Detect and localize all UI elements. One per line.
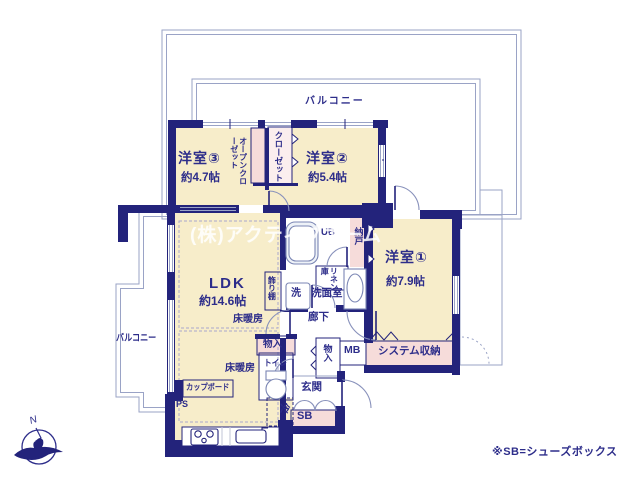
closet-label: クローゼット	[274, 131, 283, 185]
room-western1-area: 約7.9帖	[386, 276, 425, 288]
sink-icon	[236, 428, 268, 443]
watermark: (株)アクティブホーム	[190, 226, 382, 246]
vanity-icon	[344, 269, 366, 309]
room-western3-name: 洋室③	[178, 151, 221, 166]
hallway-label: 廊下	[308, 312, 329, 323]
room-western2-area: 約5.4帖	[308, 172, 347, 184]
floor-heating-label-1: 床暖房	[233, 315, 263, 326]
meter-box-label: MB	[344, 345, 360, 356]
closet-ldk-label: 物入	[263, 340, 282, 350]
closet-hall-label: 物入	[322, 344, 331, 376]
room-western1-name: 洋室①	[385, 250, 428, 265]
stove-icon	[191, 429, 218, 445]
open-closet-label: オープンクローゼット	[229, 137, 247, 191]
laundry-label: 洗	[291, 289, 301, 300]
compass-icon	[14, 428, 63, 464]
washroom-label: 洗面室	[311, 288, 343, 299]
footnote: ※SB=シューズボックス	[492, 447, 618, 459]
toilet-icon	[266, 371, 286, 399]
toilet-label: トイレ	[264, 359, 287, 368]
floor-plan: バルコニー バルコニー 洋室③ 約4.7帖 洋室② 約5.4帖 洋室① 約7.9…	[0, 0, 640, 480]
balcony-top-label: バルコニー	[305, 97, 365, 108]
refrigerator-label: 冷	[280, 404, 291, 415]
floor-heating-label-2: 床暖房	[225, 364, 255, 375]
room-ldk-area: 約14.6帖	[199, 295, 246, 308]
display-shelf-label: 飾り棚	[267, 276, 275, 312]
entrance-label: 玄関	[301, 382, 322, 393]
room-western2-name: 洋室②	[306, 151, 349, 166]
cupboard-label: カップボード	[186, 383, 229, 392]
room-western3-area: 約4.7帖	[181, 172, 220, 184]
balcony-left-label: バルコニー	[116, 334, 156, 344]
shoe-box-label: SB	[297, 411, 312, 423]
system-storage-label: システム収納	[378, 346, 441, 357]
room-ldk-name: LDK	[209, 276, 246, 292]
pipe-space-label: PS	[176, 400, 188, 409]
